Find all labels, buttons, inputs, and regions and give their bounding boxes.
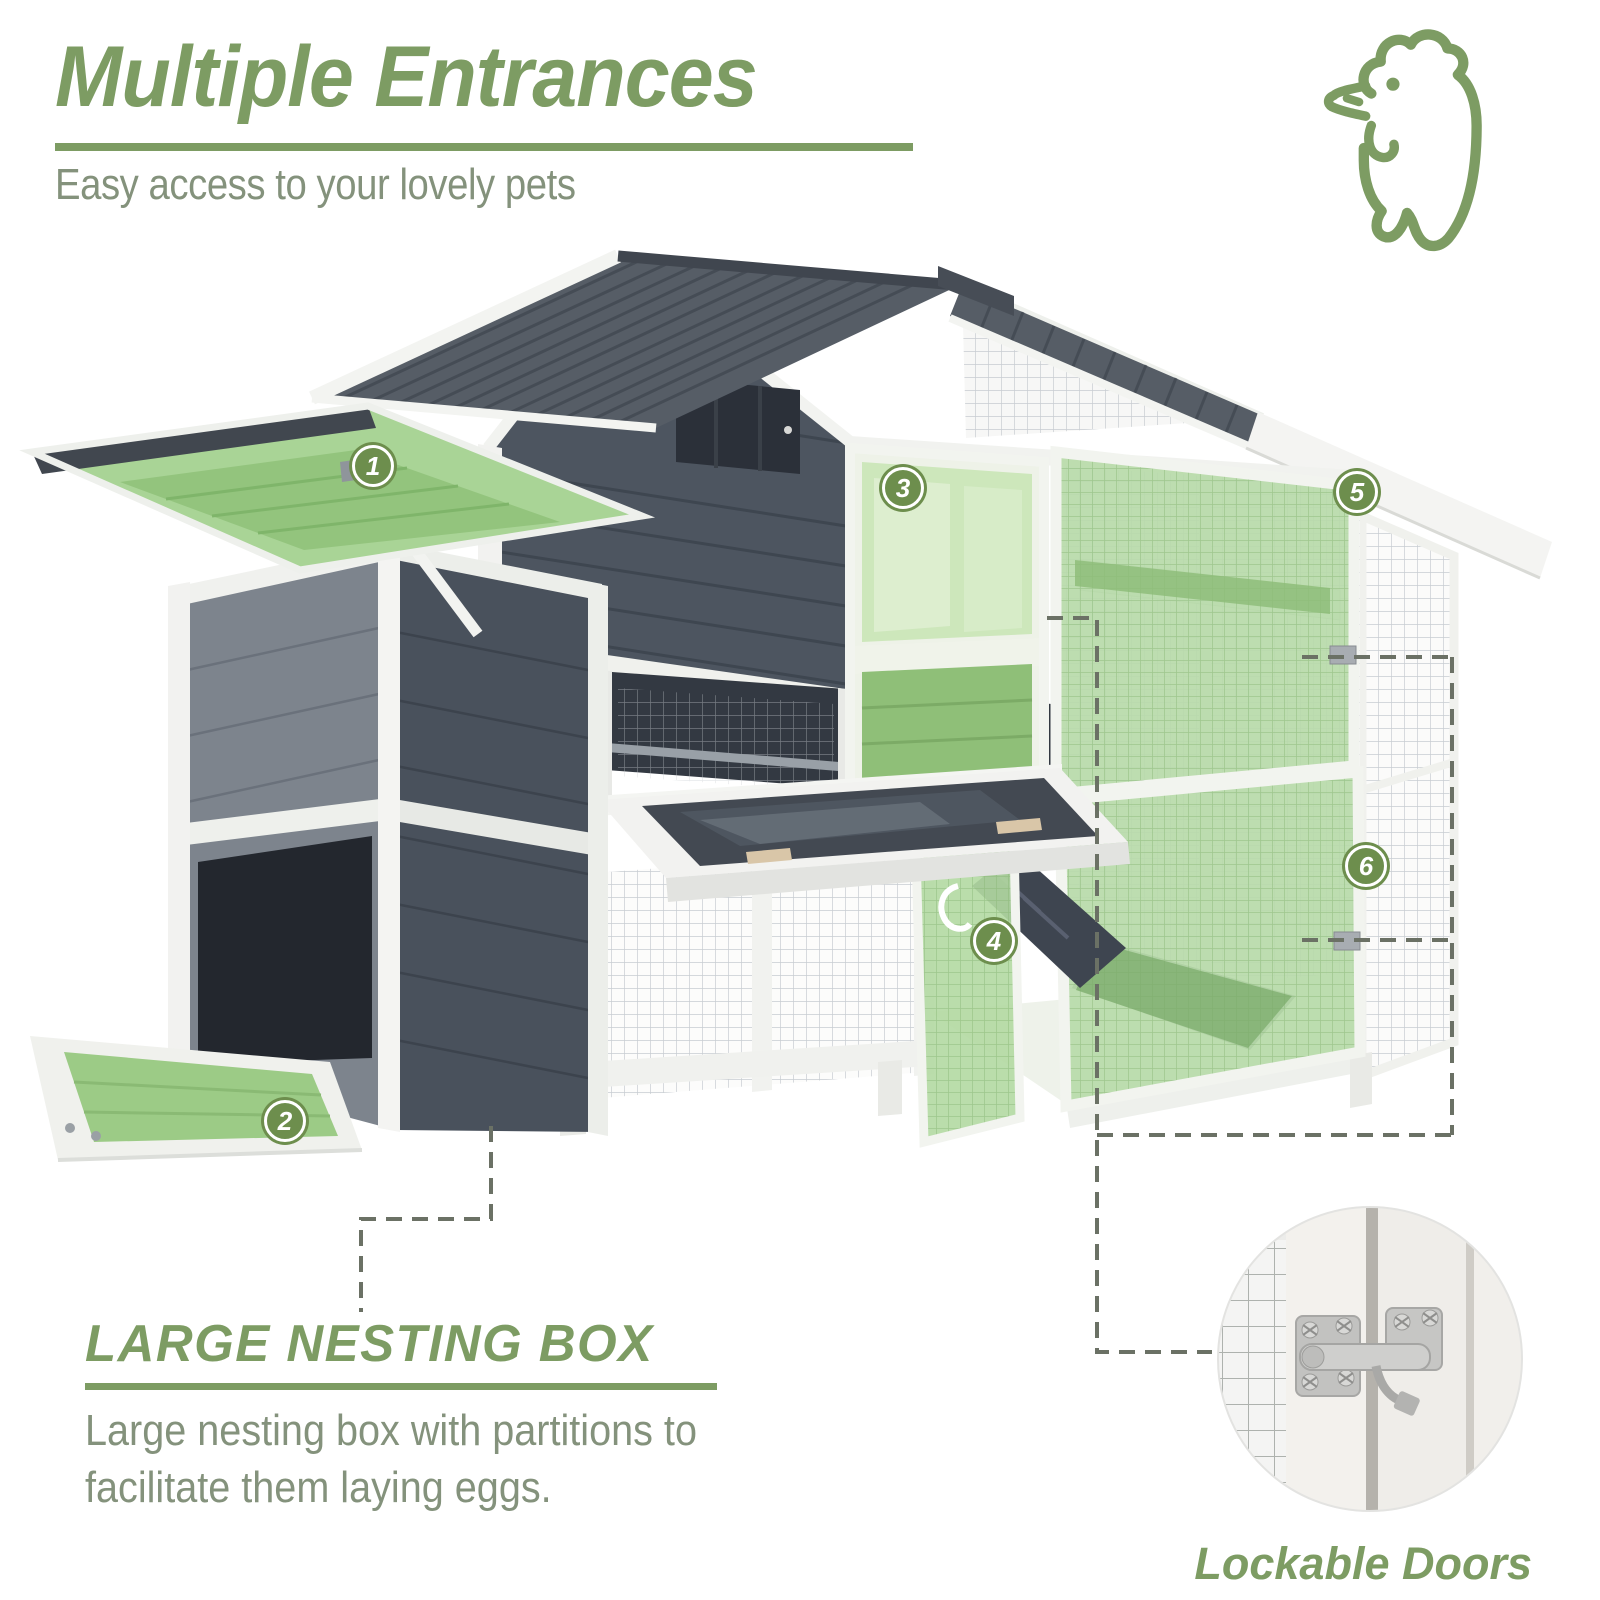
callout-6-run-door-low: 6 (1345, 845, 1387, 887)
feature-description-line2: facilitate them laying eggs. (85, 1459, 697, 1516)
feature-description: Large nesting box with partitions to fac… (85, 1402, 697, 1516)
callout-5-run-door-top: 5 (1336, 471, 1378, 513)
callout-4-ramp-door: 4 (973, 920, 1015, 962)
lower-coop-door (916, 844, 1020, 1142)
page-subtitle: Easy access to your lovely pets (55, 160, 576, 210)
callout-2-nesting-tray: 2 (264, 1100, 306, 1142)
title-divider (55, 143, 913, 151)
product-infographic: Multiple Entrances Easy access to your l… (0, 0, 1600, 1600)
feature-heading-underline (85, 1383, 717, 1390)
feature-description-line1: Large nesting box with partitions to (85, 1402, 697, 1459)
upper-coop-door (850, 448, 1044, 800)
feature-heading: LARGE NESTING BOX (85, 1314, 654, 1374)
latch-inset-photo (1218, 1207, 1534, 1511)
callout-1-nesting-lid: 1 (352, 445, 394, 487)
main-roof (312, 256, 1014, 428)
nesting-box (168, 540, 608, 1136)
rooster-icon (1308, 24, 1508, 259)
nesting-box-opening (198, 836, 372, 1064)
upper-run-door (1056, 452, 1354, 794)
callout-3-coop-door: 3 (882, 467, 924, 509)
page-title: Multiple Entrances (55, 28, 757, 127)
inset-caption: Lockable Doors (1140, 1538, 1532, 1590)
